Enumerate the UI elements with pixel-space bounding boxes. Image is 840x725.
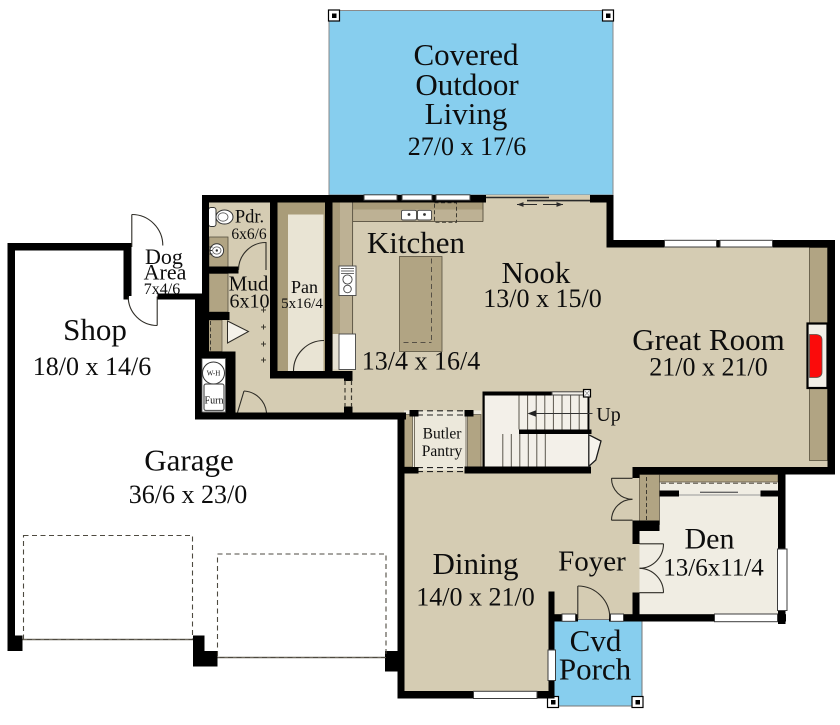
- svg-text:Pdr.: Pdr.: [235, 208, 264, 228]
- svg-text:Butler: Butler: [423, 426, 463, 443]
- svg-text:6x6/6: 6x6/6: [231, 226, 267, 243]
- svg-text:36/6 x 23/0: 36/6 x 23/0: [129, 480, 247, 509]
- svg-text:Furn: Furn: [205, 396, 224, 407]
- svg-text:Up: Up: [596, 404, 620, 426]
- svg-text:Garage: Garage: [144, 443, 234, 478]
- svg-text:13/0 x 15/0: 13/0 x 15/0: [483, 284, 601, 313]
- svg-text:W-H: W-H: [207, 370, 221, 378]
- svg-text:13/6x11/4: 13/6x11/4: [663, 555, 764, 582]
- svg-text:Pantry: Pantry: [422, 443, 463, 460]
- svg-text:6x10: 6x10: [230, 291, 270, 313]
- svg-text:21/0 x 21/0: 21/0 x 21/0: [649, 353, 767, 382]
- svg-text:5x16/4: 5x16/4: [281, 296, 323, 312]
- svg-text:Pan: Pan: [291, 277, 318, 297]
- svg-text:Shop: Shop: [63, 312, 127, 347]
- svg-text:Dining: Dining: [432, 546, 518, 581]
- svg-text:Living: Living: [425, 96, 508, 131]
- svg-text:Foyer: Foyer: [558, 546, 626, 578]
- svg-text:18/0 x 14/6: 18/0 x 14/6: [33, 352, 151, 381]
- svg-text:Porch: Porch: [559, 652, 632, 687]
- svg-text:13/4 x 16/4: 13/4 x 16/4: [362, 347, 480, 376]
- svg-text:Den: Den: [685, 523, 735, 556]
- svg-text:27/0 x 17/6: 27/0 x 17/6: [408, 132, 526, 161]
- svg-text:Kitchen: Kitchen: [367, 225, 466, 260]
- svg-text:14/0 x 21/0: 14/0 x 21/0: [416, 583, 534, 612]
- svg-text:7x4/6: 7x4/6: [144, 281, 180, 298]
